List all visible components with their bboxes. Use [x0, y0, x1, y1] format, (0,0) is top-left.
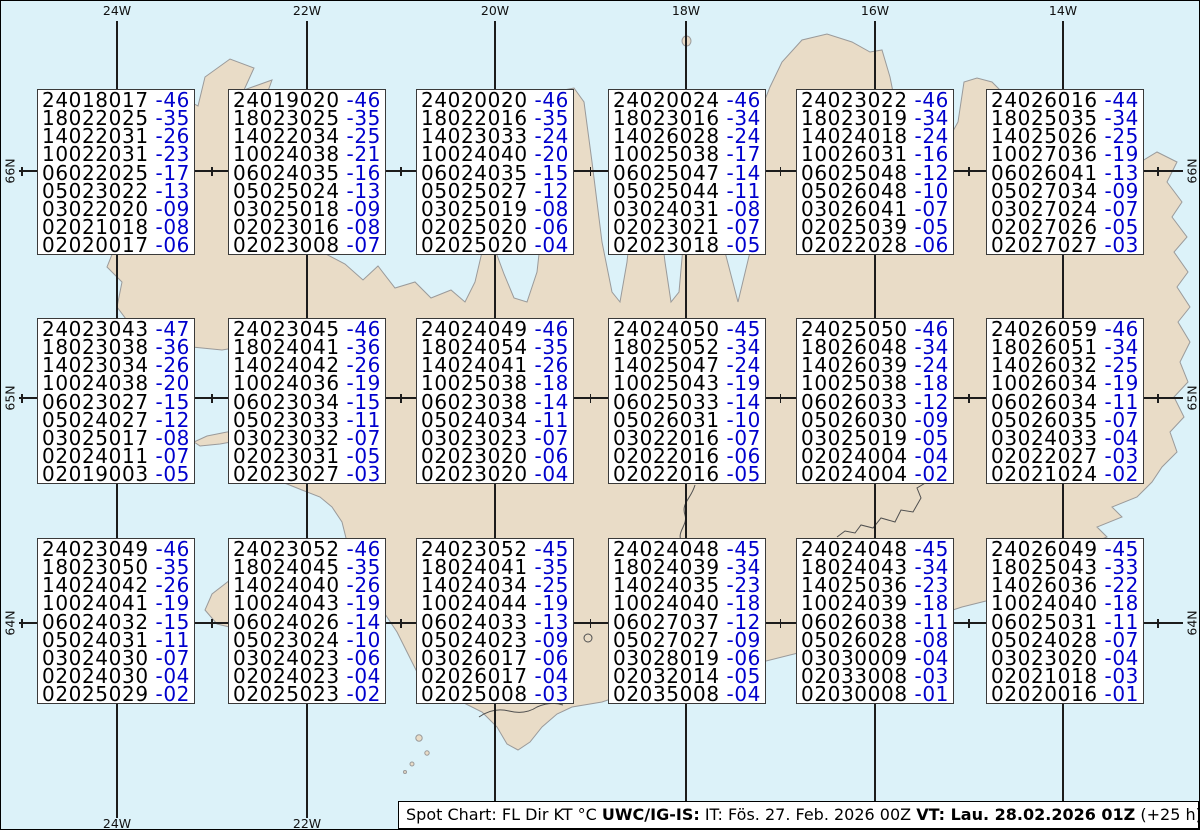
wind-speed-kt-value: 08 — [881, 685, 911, 703]
wind-speed-kt-value: 20 — [501, 465, 531, 483]
spot-data-line: 02022028-06 — [801, 236, 949, 254]
latitude-label-right: 66N — [1185, 158, 1200, 183]
graticule-cross-tick — [780, 619, 781, 628]
temperature-value: -02 — [347, 685, 381, 703]
flight-level-direction-value: 020220 — [613, 465, 693, 483]
temperature-value: -07 — [347, 236, 381, 254]
spot-data-box: 24024048-4518024039-3414024035-231002404… — [608, 538, 766, 704]
graticule-cross-tick — [968, 167, 969, 176]
spot-data-line: 02020016-01 — [991, 685, 1139, 703]
spot-data-box: 24023052-4518024041-3514024034-251002404… — [416, 538, 574, 704]
temperature-value: -05 — [156, 465, 190, 483]
temperature-value: -01 — [915, 685, 949, 703]
graticule-cross-tick — [780, 394, 781, 403]
caption-segment: IT: Fös. 27. Feb. 2026 00Z — [700, 805, 916, 824]
flight-level-direction-value: 020200 — [42, 236, 122, 254]
spot-data-line: 02023008-07 — [233, 236, 381, 254]
temperature-value: -04 — [535, 465, 569, 483]
wind-speed-kt-value: 20 — [501, 236, 531, 254]
spot-data-line: 02023020-04 — [421, 465, 569, 483]
spot-data-box: 24026059-4618026051-3414026032-251002603… — [986, 318, 1144, 484]
latitude-label-left: 64N — [3, 610, 18, 635]
flight-level-direction-value: 020220 — [801, 236, 881, 254]
graticule-cross-tick — [211, 619, 212, 628]
temperature-value: -04 — [535, 236, 569, 254]
spot-data-box: 24026016-4418025035-3414025026-251002703… — [986, 89, 1144, 255]
latitude-label-right: 64N — [1185, 610, 1200, 635]
graticule-cross-tick — [400, 167, 401, 176]
chart-caption: Spot Chart: FL Dir KT °C UWC/IG-IS: IT: … — [398, 801, 1199, 829]
longitude-label-top: 20W — [481, 3, 509, 18]
graticule-cross-tick — [968, 394, 969, 403]
spot-data-line: 02024004-02 — [801, 465, 949, 483]
wind-speed-kt-value: 08 — [313, 236, 343, 254]
flight-level-direction-value: 020250 — [421, 236, 501, 254]
graticule-cross-tick — [211, 394, 212, 403]
wind-speed-kt-value: 17 — [122, 236, 152, 254]
graticule-cross-tick — [590, 394, 591, 403]
spot-data-box: 24023043-4718023038-3614023034-261002403… — [37, 318, 195, 484]
spot-chart: 24018017-4618022025-3514022031-261002203… — [0, 0, 1200, 830]
spot-data-box: 24026049-4518025043-3314026036-221002404… — [986, 538, 1144, 704]
latitude-label-left: 65N — [3, 385, 18, 410]
latitude-label-right: 65N — [1185, 385, 1200, 410]
spot-data-line: 02020017-06 — [42, 236, 190, 254]
flight-level-direction-value: 020300 — [801, 685, 881, 703]
graticule-cross-tick — [21, 619, 22, 628]
spot-data-line: 02025008-03 — [421, 685, 569, 703]
graticule-cross-tick — [1157, 167, 1158, 176]
caption-segment: UWC/IG-IS: — [602, 805, 700, 824]
caption-segment: (+25 h) — [1135, 805, 1200, 824]
spot-data-line: 02025029-02 — [42, 685, 190, 703]
wind-speed-kt-value: 18 — [693, 236, 723, 254]
latitude-label-left: 66N — [3, 158, 18, 183]
wind-speed-kt-value: 23 — [313, 685, 343, 703]
temperature-value: -03 — [535, 685, 569, 703]
wind-speed-kt-value: 28 — [881, 236, 911, 254]
temperature-value: -06 — [915, 236, 949, 254]
spot-data-box: 24024050-4518025052-3414025047-241002504… — [608, 318, 766, 484]
spot-data-box: 24023052-4618024045-3514024040-261002404… — [228, 538, 386, 704]
wind-speed-kt-value: 29 — [122, 685, 152, 703]
graticule-cross-tick — [590, 619, 591, 628]
spot-data-line: 02025020-04 — [421, 236, 569, 254]
spot-data-box: 24024048-4518024043-3414025036-231002403… — [796, 538, 954, 704]
flight-level-direction-value: 020230 — [233, 465, 313, 483]
spot-data-line: 02023027-03 — [233, 465, 381, 483]
graticule-cross-tick — [400, 394, 401, 403]
flight-level-direction-value: 020250 — [42, 685, 122, 703]
wind-speed-kt-value: 27 — [313, 465, 343, 483]
graticule-cross-tick — [21, 394, 22, 403]
spot-data-line: 02035008-04 — [613, 685, 761, 703]
temperature-value: -05 — [727, 465, 761, 483]
caption-segment: Spot Chart: FL Dir KT °C — [406, 805, 602, 824]
spot-data-box: 24020024-4618023016-3414026028-241002503… — [608, 89, 766, 255]
flight-level-direction-value: 020250 — [421, 685, 501, 703]
spot-data-box: 24018017-4618022025-3514022031-261002203… — [37, 89, 195, 255]
longitude-label-bottom: 22W — [293, 816, 321, 830]
flight-level-direction-value: 020350 — [613, 685, 693, 703]
wind-speed-kt-value: 16 — [1071, 685, 1101, 703]
spot-data-box: 24023045-4618024041-3614024042-261002403… — [228, 318, 386, 484]
spot-data-line: 02030008-01 — [801, 685, 949, 703]
graticule-cross-tick — [400, 619, 401, 628]
wind-speed-kt-value: 03 — [122, 465, 152, 483]
wind-speed-kt-value: 24 — [1071, 465, 1101, 483]
temperature-value: -03 — [347, 465, 381, 483]
spot-data-box: 24023049-4618023050-3514024042-261002404… — [37, 538, 195, 704]
flight-level-direction-value: 020210 — [991, 465, 1071, 483]
temperature-value: -02 — [1105, 465, 1139, 483]
temperature-value: -05 — [727, 236, 761, 254]
flight-level-direction-value: 020190 — [42, 465, 122, 483]
wind-speed-kt-value: 08 — [501, 685, 531, 703]
spot-data-box: 24020020-4618022016-3514023033-241002404… — [416, 89, 574, 255]
wind-speed-kt-value: 16 — [693, 465, 723, 483]
spot-data-line: 02023018-05 — [613, 236, 761, 254]
wind-speed-kt-value: 04 — [881, 465, 911, 483]
graticule-cross-tick — [1157, 394, 1158, 403]
longitude-label-top: 16W — [861, 3, 889, 18]
spot-data-line: 02025023-02 — [233, 685, 381, 703]
graticule-cross-tick — [211, 167, 212, 176]
temperature-value: -06 — [156, 236, 190, 254]
temperature-value: -02 — [915, 465, 949, 483]
temperature-value: -03 — [1105, 236, 1139, 254]
graticule-cross-tick — [590, 167, 591, 176]
flight-level-direction-value: 020200 — [991, 685, 1071, 703]
graticule-cross-tick — [968, 619, 969, 628]
wind-speed-kt-value: 27 — [1071, 236, 1101, 254]
spot-data-line: 02021024-02 — [991, 465, 1139, 483]
longitude-label-top: 24W — [103, 3, 131, 18]
flight-level-direction-value: 020240 — [801, 465, 881, 483]
spot-data-box: 24024049-4618024054-3514024041-261002503… — [416, 318, 574, 484]
wind-speed-kt-value: 08 — [693, 685, 723, 703]
temperature-value: -02 — [156, 685, 190, 703]
spot-data-box: 24019020-4618023025-3514022034-251002403… — [228, 89, 386, 255]
longitude-label-top: 14W — [1049, 3, 1077, 18]
spot-data-line: 02019003-05 — [42, 465, 190, 483]
spot-data-box: 24025050-4618026048-3414026039-241002503… — [796, 318, 954, 484]
graticule-cross-tick — [780, 167, 781, 176]
longitude-label-top: 22W — [293, 3, 321, 18]
longitude-label-bottom: 24W — [103, 816, 131, 830]
spot-data-line: 02027027-03 — [991, 236, 1139, 254]
flight-level-direction-value: 020270 — [991, 236, 1071, 254]
longitude-label-top: 18W — [672, 3, 700, 18]
flight-level-direction-value: 020250 — [233, 685, 313, 703]
graticule-cross-tick — [21, 167, 22, 176]
flight-level-direction-value: 020230 — [233, 236, 313, 254]
temperature-value: -01 — [1105, 685, 1139, 703]
graticule-cross-tick — [1157, 619, 1158, 628]
spot-data-box: 24023022-4618023019-3414024018-241002603… — [796, 89, 954, 255]
temperature-value: -04 — [727, 685, 761, 703]
spot-data-line: 02022016-05 — [613, 465, 761, 483]
flight-level-direction-value: 020230 — [613, 236, 693, 254]
flight-level-direction-value: 020230 — [421, 465, 501, 483]
caption-segment: VT: Lau. 28.02.2026 01Z — [916, 805, 1135, 824]
